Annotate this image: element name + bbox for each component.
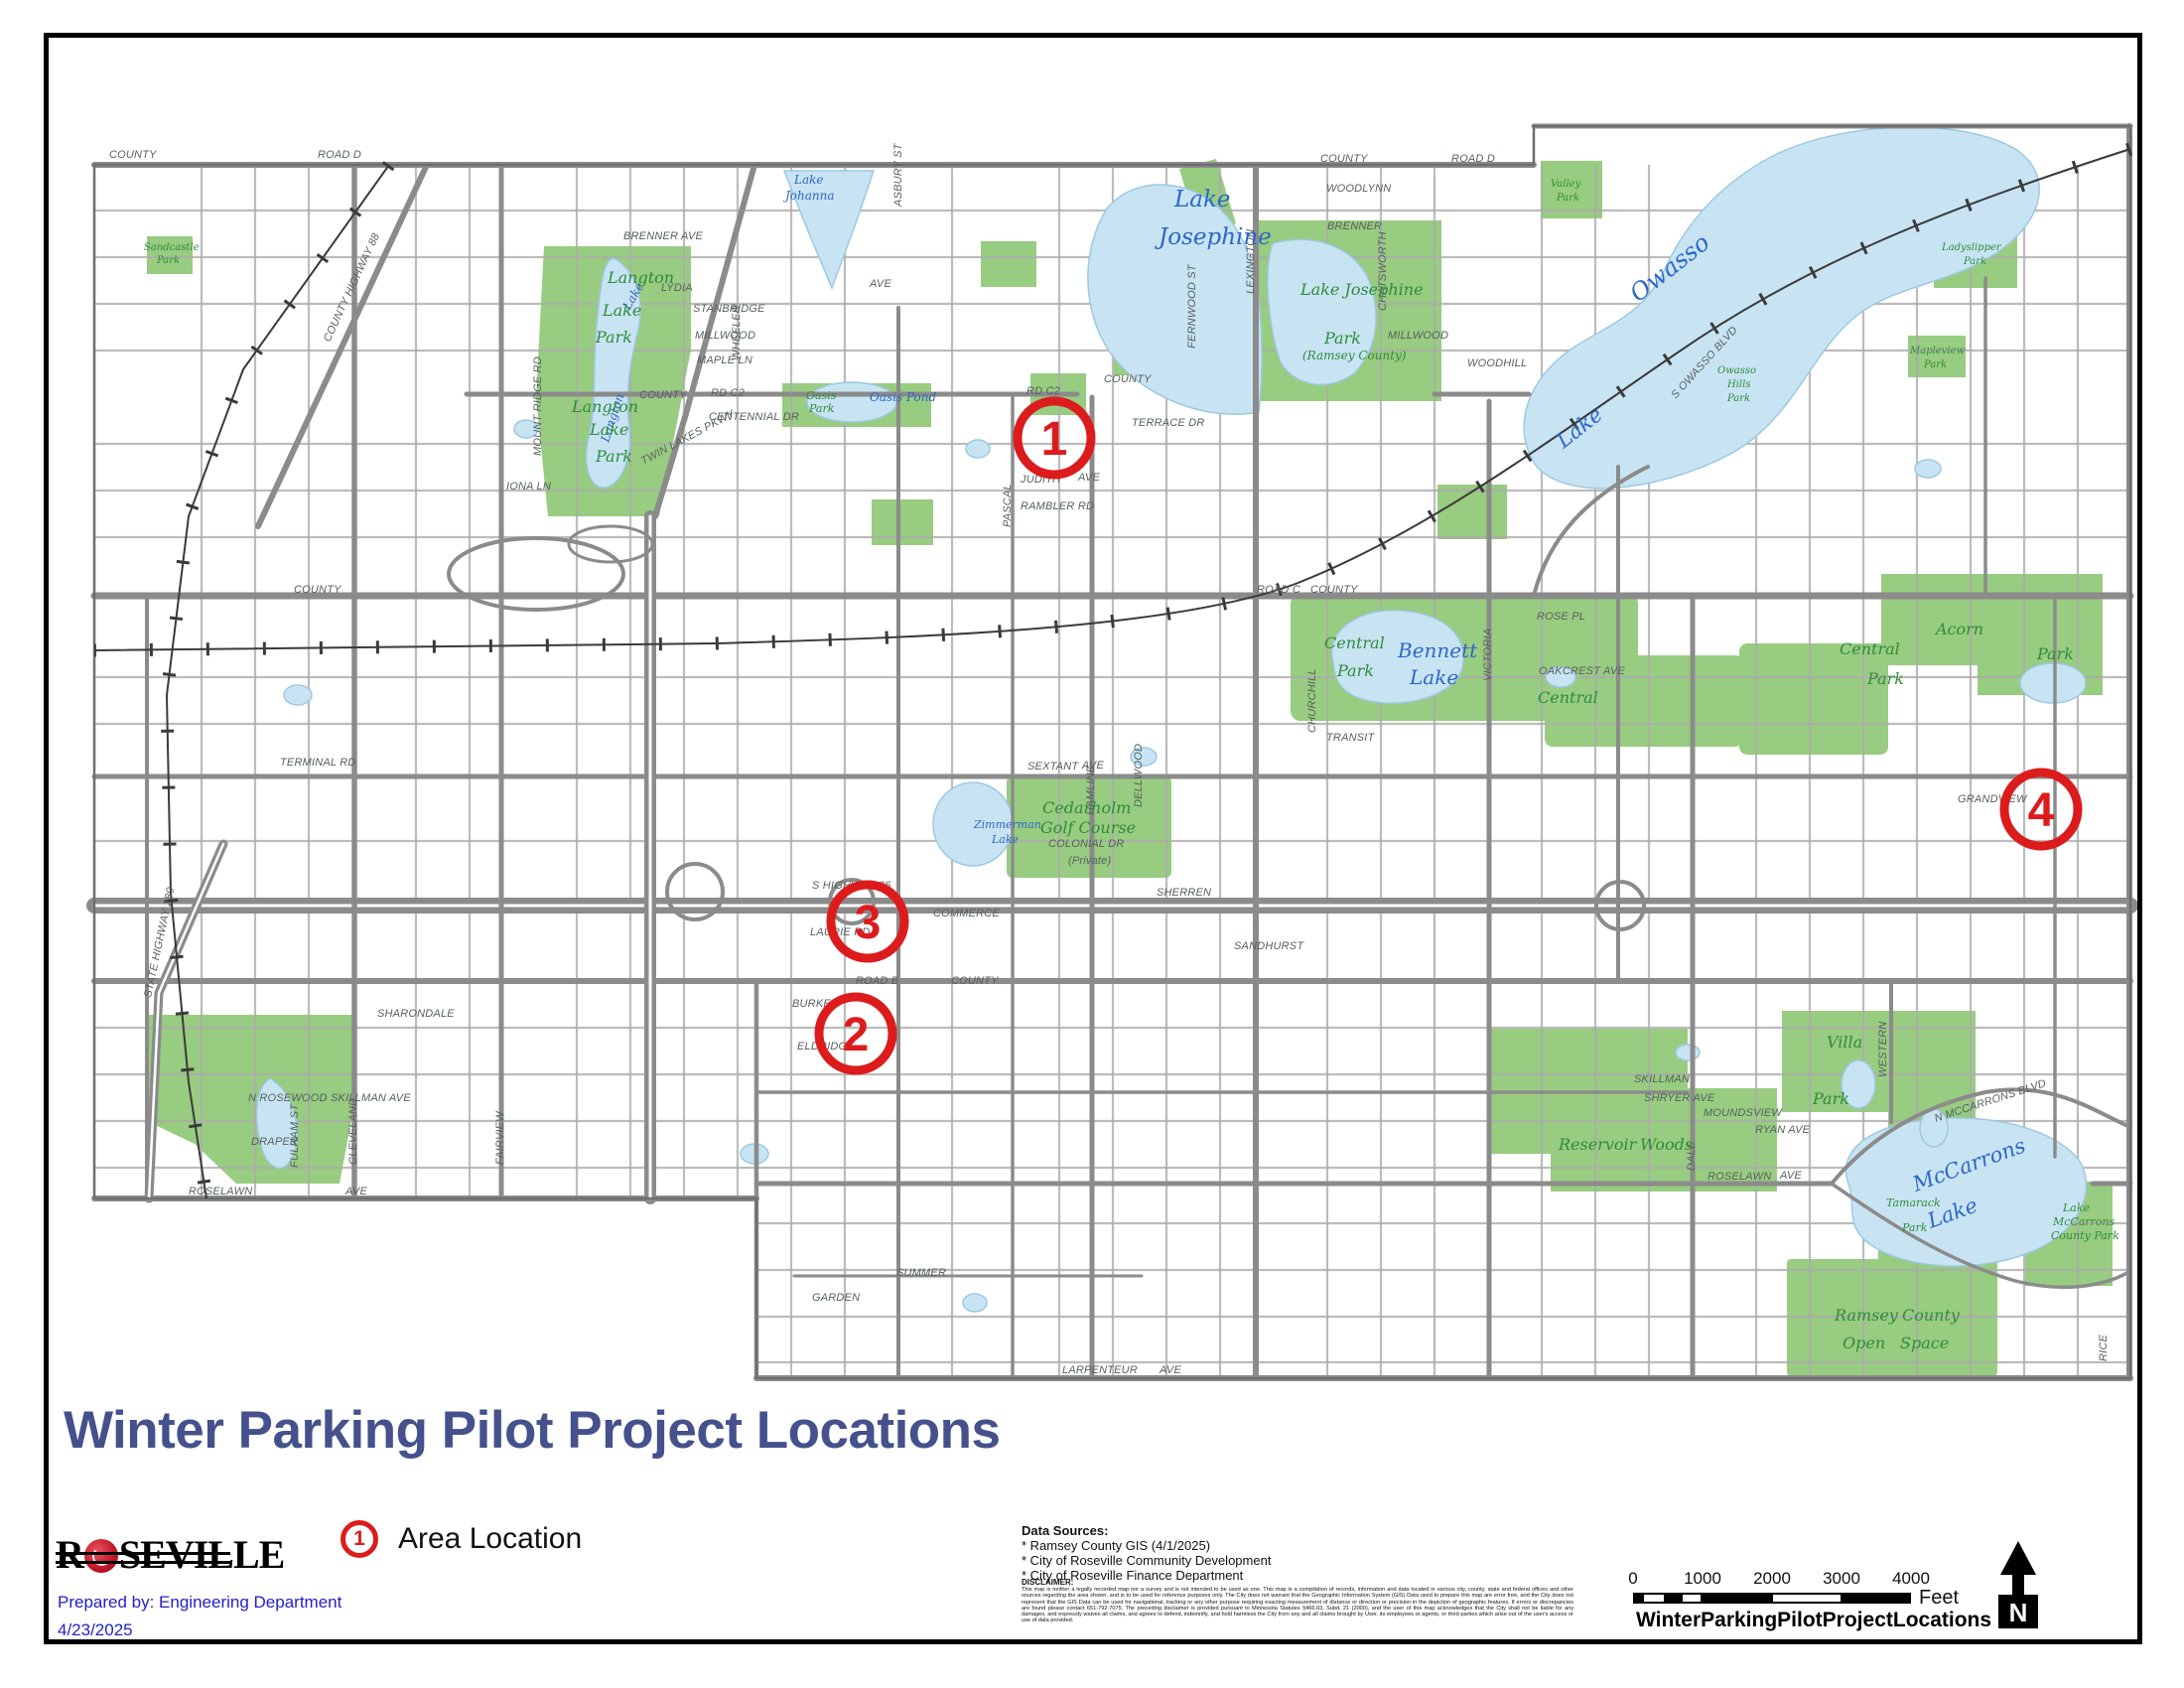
park-label: Tamarack <box>1886 1196 1941 1209</box>
page-title: Winter Parking Pilot Project Locations <box>64 1400 1001 1461</box>
street-label: TERRACE DR <box>1132 417 1205 429</box>
street-label: SHERREN <box>1157 887 1211 899</box>
park-label: Ramsey <box>1834 1306 1899 1325</box>
park-label: Open <box>1843 1334 1885 1352</box>
area-marker-1: 1 <box>1018 401 1091 475</box>
street-label: WOODHILL <box>1467 357 1527 369</box>
park-label: McCarrons <box>2052 1215 2116 1228</box>
disclaimer-text: This map is neither a legally recorded m… <box>1022 1587 1573 1624</box>
data-source-item: * Ramsey County GIS (4/1/2025) <box>1022 1538 1271 1553</box>
street-label: SEXTANT <box>1027 761 1079 773</box>
svg-text:1: 1 <box>1041 413 1068 466</box>
street-label: MOUNT RIDGE RD <box>532 356 544 456</box>
street-label: RICE <box>2098 1334 2110 1361</box>
street-label: FERNWOOD ST <box>1186 263 1198 349</box>
scale-tick: 3000 <box>1823 1569 1860 1589</box>
legend-area-marker-icon: 1 <box>341 1520 378 1558</box>
scale-unit: Feet <box>1919 1587 1959 1610</box>
lake-label: Oasis Pond <box>870 390 937 404</box>
svg-text:2: 2 <box>843 1009 870 1061</box>
street-label: RYAN AVE <box>1755 1124 1811 1136</box>
street-label: ROAD B <box>856 975 898 987</box>
park-label: Park <box>1866 669 1904 688</box>
street-label: OAKCREST AVE <box>1539 665 1625 677</box>
data-sources-heading: Data Sources: <box>1022 1523 1271 1538</box>
park-label: Lake <box>589 420 628 439</box>
lake-label: Lake <box>991 833 1020 846</box>
area-marker-2: 2 <box>819 997 892 1070</box>
street-label: MILLWOOD <box>1388 330 1448 342</box>
scale-caption: WinterParkingPilotProjectLocations <box>1636 1609 1991 1632</box>
street-label: TERMINAL RD <box>280 757 356 769</box>
north-arrow-head <box>2000 1541 2036 1575</box>
north-arrow: N <box>1990 1537 2050 1631</box>
logo-line <box>56 1552 230 1555</box>
park-label: Mapleview <box>1909 346 1965 356</box>
street-label: PASCAL <box>1002 484 1014 527</box>
street-label: COUNTY <box>1104 373 1152 385</box>
park-label: Reservoir <box>1558 1135 1638 1154</box>
park-label: Park <box>1963 256 1986 267</box>
data-source-item: * City of Roseville Community Developmen… <box>1022 1553 1271 1568</box>
park-label: Acorn <box>1934 620 1983 638</box>
park-label: Hills <box>1726 379 1750 390</box>
street-label: RD C2 <box>711 387 745 399</box>
disclaimer: DISCLAIMER: This map is neither a legall… <box>1022 1578 1573 1624</box>
street-label: GARDEN <box>812 1292 860 1304</box>
street-label: SKILLMAN AVE <box>331 1092 411 1104</box>
street-label: (Private) <box>1068 855 1111 867</box>
park-label: Park <box>1323 329 1361 348</box>
street-label: WESTERN <box>1877 1022 1889 1077</box>
svg-text:3: 3 <box>855 897 882 949</box>
street-label: BRENNER <box>1327 220 1382 232</box>
street-label: FAIRVIEW <box>494 1110 506 1165</box>
street-label: MAPLE LN <box>697 354 752 366</box>
park-label: Park <box>1556 193 1579 204</box>
street-label: ROAD C <box>1257 584 1300 596</box>
street-label: SHRYER AVE <box>1644 1092 1715 1104</box>
street-label: STANBRIDGE <box>693 303 765 315</box>
scale-bar-rule <box>1633 1593 1911 1604</box>
street-label: IONA LN <box>506 481 551 492</box>
street-label: COUNTY <box>1320 153 1368 165</box>
park-label: Golf Course <box>1040 818 1136 837</box>
disclaimer-heading: DISCLAIMER: <box>1022 1578 1573 1587</box>
park-label: Lake <box>602 301 641 320</box>
street-label: SHARONDALE <box>377 1008 455 1020</box>
park-label: Park <box>595 328 632 347</box>
data-sources: Data Sources: * Ramsey County GIS (4/1/2… <box>1022 1523 1271 1583</box>
street-label: MILLWOOD <box>695 330 755 342</box>
street-label: N ROSEWOOD <box>248 1092 328 1104</box>
rose-icon <box>84 1539 118 1573</box>
street-label: COMMERCE <box>933 908 1000 919</box>
scale-tick: 0 <box>1628 1569 1637 1589</box>
scale-bar: 0 1000 2000 3000 4000 Feet WinterParking… <box>1633 1569 1990 1628</box>
park-label: Cedarholm <box>1042 798 1131 817</box>
logo-line <box>56 1561 230 1564</box>
park-label: Park <box>1336 661 1374 680</box>
street-label: COUNTY <box>109 149 157 161</box>
street-label: COLONIAL DR <box>1048 838 1125 850</box>
roseville-logo: RSEVILLE <box>56 1531 230 1579</box>
park-label: Park <box>595 447 632 466</box>
lake-label: Zimmerman <box>973 818 1041 831</box>
street-label: AVE <box>869 278 891 290</box>
street-label: COUNTY <box>294 584 341 596</box>
park-label: Sandcastle <box>144 242 200 253</box>
street-label: ROAD D <box>1451 153 1495 165</box>
park-label: Lake Josephine <box>1299 280 1424 299</box>
lake-label: Bennett <box>1397 638 1478 662</box>
park-label: County <box>1902 1306 1961 1325</box>
park-label: Central <box>1840 639 1900 658</box>
park-label: Central <box>1538 688 1598 707</box>
street-label: ROAD D <box>318 149 361 161</box>
park-victoria-north <box>1437 485 1507 539</box>
street-label: SANDHURST <box>1234 940 1304 952</box>
street-label: ROSE PL <box>1537 611 1585 623</box>
park-central-east <box>1739 643 1888 755</box>
street-label: TRANSIT <box>1326 732 1376 744</box>
street-label: VICTORIA <box>1482 629 1494 681</box>
park-label: Woods <box>1640 1135 1693 1154</box>
scale-tick: 4000 <box>1892 1569 1930 1589</box>
street-label: FULHAM ST <box>289 1103 301 1168</box>
lake-label: Lake <box>793 173 824 187</box>
street-label: COUNTY <box>1310 584 1358 596</box>
street-label: ASBURY ST <box>892 142 904 208</box>
street-label: SUMMER <box>896 1267 946 1279</box>
prepared-by-note: Prepared by: Engineering Department <box>58 1593 341 1613</box>
park-label: Lake <box>2062 1201 2091 1214</box>
park-label: (Ramsey County) <box>1302 349 1407 362</box>
park-label: Park <box>808 402 835 415</box>
street-label: MOUNDSVIEW <box>1704 1107 1783 1119</box>
north-arrow-stem <box>2012 1573 2024 1597</box>
park-label: Oasis <box>806 389 837 402</box>
park-label: Park <box>2036 644 2074 663</box>
park-label: Space <box>1900 1334 1949 1352</box>
lake-label: Lake <box>1409 665 1458 689</box>
scale-tick: 2000 <box>1753 1569 1791 1589</box>
park-label: Park <box>1726 393 1750 404</box>
park-label: Ladyslipper <box>1941 242 2002 253</box>
street-label: BRENNER AVE <box>623 230 704 242</box>
street-label: RAMBLER RD <box>1021 500 1094 512</box>
park-label: Park <box>1812 1089 1849 1108</box>
street-label: AVE <box>1159 1364 1181 1376</box>
street-label: CLEVELAND <box>347 1098 359 1165</box>
svg-text:4: 4 <box>2028 784 2055 837</box>
park-label: Villa <box>1827 1033 1862 1052</box>
street-label: AVE <box>1779 1170 1802 1182</box>
street-label: COUNTY <box>951 975 999 987</box>
park-label: Langton <box>607 268 674 287</box>
street-label: ROSELAWN <box>1707 1171 1771 1183</box>
area-marker-4: 4 <box>2004 773 2078 846</box>
street-label: DELLWOOD <box>1133 744 1145 807</box>
park-label: County Park <box>2051 1229 2119 1242</box>
street-label: SKILLMAN <box>1634 1073 1690 1085</box>
date-note: 4/23/2025 <box>58 1620 133 1640</box>
street-label: LARPENTEUR <box>1062 1364 1138 1376</box>
legend-label: Area Location <box>398 1522 582 1556</box>
street-label: RD C2 <box>1026 385 1060 397</box>
street-label: CHURCHILL <box>1306 668 1318 733</box>
park-label: Owasso <box>1717 365 1756 376</box>
street-label: WHEELER <box>731 305 743 360</box>
street-label: CHATSWORTH <box>1377 231 1389 311</box>
lake-label: Lake <box>1173 187 1231 212</box>
park-label: Park <box>1923 359 1947 370</box>
north-label: N <box>2009 1598 2028 1627</box>
park-label: Langton <box>571 397 638 416</box>
street-label: WOODLYNN <box>1326 183 1391 195</box>
street-label: COUNTY <box>639 389 687 401</box>
park-label: Park <box>1901 1221 1928 1234</box>
street-label: ROSELAWN <box>189 1186 252 1197</box>
park-label: Park <box>156 255 180 266</box>
street-label: AVE <box>344 1186 367 1197</box>
scale-tick: 1000 <box>1684 1569 1721 1589</box>
street-label: GRANDVIEW <box>1958 793 2028 805</box>
lake-label: Josephine <box>1155 224 1272 250</box>
lake-label: Johanna <box>782 189 835 203</box>
park-label: Valley <box>1551 179 1581 190</box>
street-label: AVE <box>1077 472 1100 484</box>
park-autumn-grove <box>981 241 1036 287</box>
park-label: Central <box>1324 633 1385 652</box>
